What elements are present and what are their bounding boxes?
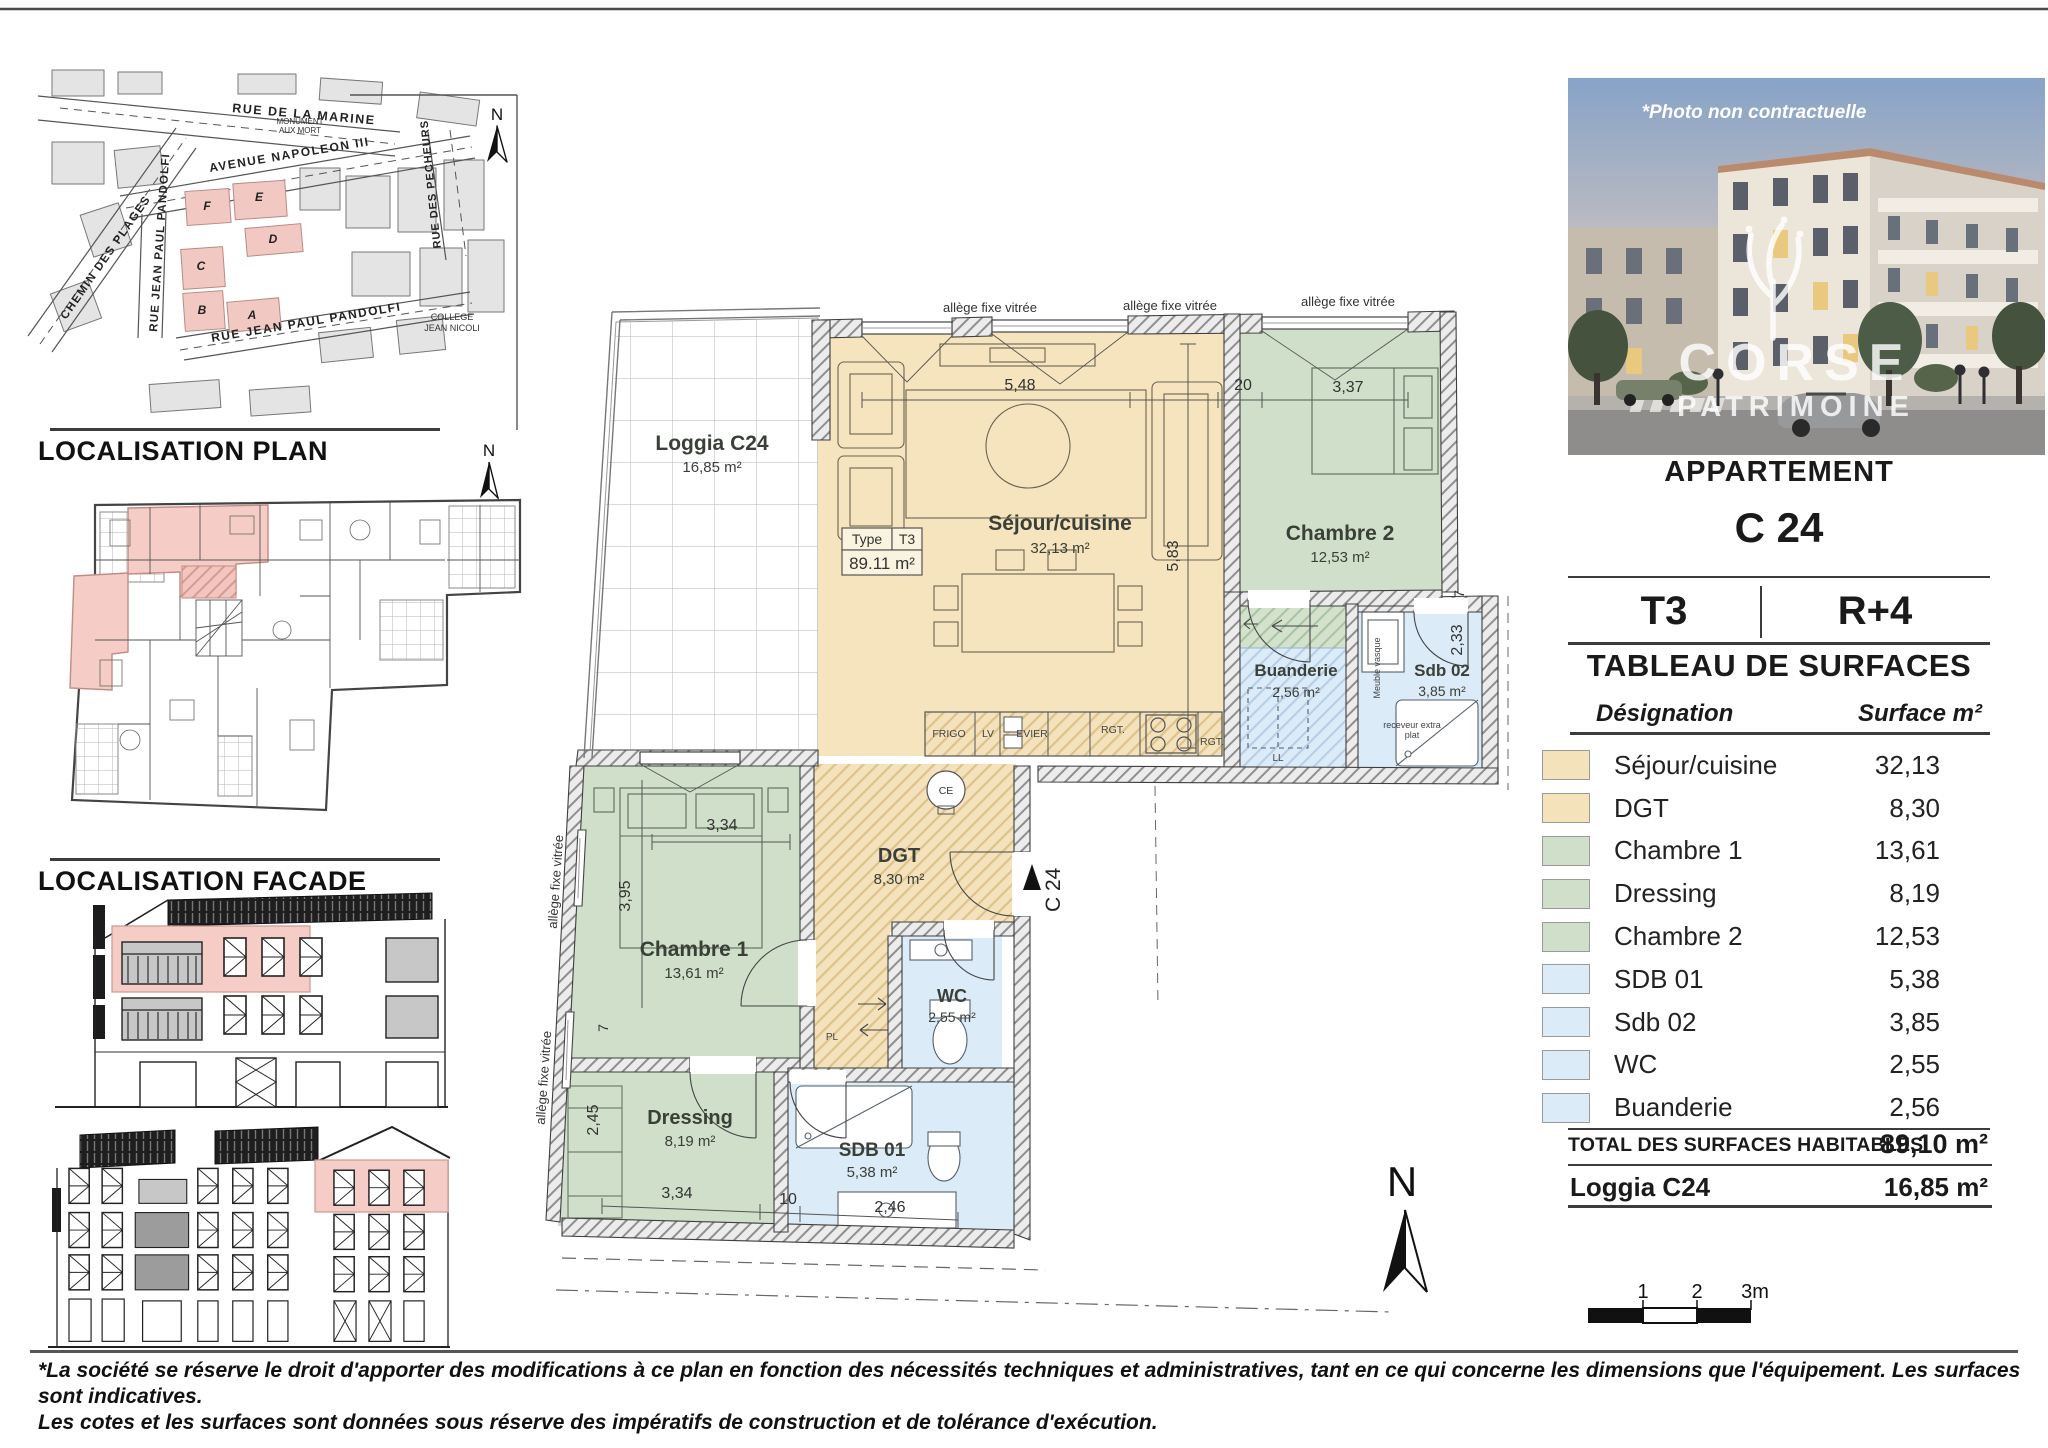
plan-sheet: F E D C B A RUE DE LA MARINE AVENUE NAPO… (0, 0, 2048, 1448)
map-north-arrow: N (487, 105, 507, 162)
apartment-floor: R+4 (1760, 582, 1990, 640)
svg-text:89.11 m²: 89.11 m² (849, 554, 915, 573)
svg-text:13,61 m²: 13,61 m² (664, 965, 723, 982)
panel-rule-2 (1568, 642, 1990, 645)
thumbnail-stair (196, 600, 242, 656)
table-row: Sdb 023,85 (1542, 1001, 1992, 1044)
svg-text:Chambre 2: Chambre 2 (1286, 522, 1395, 545)
building-photo: CORSE PATRIMOINE *Photo non contractuell… (1568, 78, 2045, 455)
kitchen-counter (925, 712, 1222, 756)
table-row: Chambre 113,61 (1542, 830, 1992, 873)
svg-text:D: D (269, 232, 278, 246)
disclaimer-rule (30, 1350, 2018, 1353)
row-value: 3,85 (1889, 1007, 1940, 1038)
svg-text:Séjour/cuisine: Séjour/cuisine (988, 512, 1132, 535)
svg-text:10: 10 (779, 1191, 797, 1208)
scale-bar: 1 2 3m (1588, 1281, 1769, 1323)
room-chambre1 (568, 766, 800, 1058)
svg-text:Buanderie: Buanderie (1254, 661, 1337, 680)
apartment-label: APPARTEMENT (1568, 456, 1990, 489)
row-value: 8,19 (1889, 878, 1940, 909)
svg-text:C 24: C 24 (1042, 867, 1065, 912)
panel-rule-1 (1568, 576, 1990, 578)
svg-text:SDB 01: SDB 01 (839, 1140, 906, 1161)
surfaces-table-title: TABLEAU DE SURFACES (1568, 648, 1990, 684)
apartment-code: C 24 (1568, 504, 1990, 552)
apartment-type: T3 (1568, 582, 1760, 640)
svg-text:N: N (1387, 1158, 1417, 1205)
row-swatch (1542, 1050, 1590, 1080)
svg-text:CE: CE (939, 785, 954, 797)
svg-text:8,19 m²: 8,19 m² (665, 1133, 716, 1150)
floorplan-thumbnail (70, 500, 520, 810)
svg-text:allège fixe vitrée: allège fixe vitrée (1123, 298, 1217, 313)
svg-text:PL: PL (826, 1032, 839, 1043)
type-floor-row: T3 R+4 (1568, 582, 1990, 640)
svg-text:3,37: 3,37 (1332, 379, 1363, 396)
header-rule (1570, 732, 1990, 735)
svg-text:A: A (247, 308, 257, 322)
row-value: 5,38 (1889, 964, 1940, 995)
plan-title-rule (50, 428, 440, 431)
svg-text:allège fixe vitrée: allège fixe vitrée (943, 300, 1037, 315)
svg-text:8,30 m²: 8,30 m² (874, 871, 925, 888)
svg-text:1: 1 (1637, 1281, 1648, 1303)
svg-text:N: N (483, 441, 495, 460)
title-north-arrow: N (480, 441, 498, 498)
row-value: 13,61 (1875, 835, 1940, 866)
row-name: Sdb 02 (1614, 1007, 1696, 1038)
svg-text:AUX MORT: AUX MORT (279, 126, 321, 135)
svg-text:7: 7 (1451, 590, 1467, 598)
svg-text:Dressing: Dressing (647, 1107, 733, 1129)
svg-text:3,95: 3,95 (617, 880, 634, 911)
svg-text:MONUMENT: MONUMENT (276, 117, 323, 126)
plan-north-arrow: N (1383, 1158, 1427, 1292)
disclaimer-line1: *La société se réserve le droit d'apport… (38, 1358, 2033, 1410)
row-name: Chambre 1 (1614, 835, 1743, 866)
apartment-floorplan: CE (533, 294, 1508, 1312)
svg-text:C: C (197, 259, 206, 273)
room-dgt-couloir (814, 930, 890, 1082)
svg-text:Sdb 02: Sdb 02 (1414, 661, 1470, 680)
svg-text:Meuble vasque: Meuble vasque (1372, 637, 1382, 698)
row-name: DGT (1614, 793, 1669, 824)
svg-text:5,48: 5,48 (1004, 377, 1035, 394)
loggia-rule-bottom (1568, 1205, 1992, 1208)
total-value: 89,10 m² (1880, 1129, 1988, 1160)
row-swatch (1542, 836, 1590, 866)
svg-text:Loggia C24: Loggia C24 (655, 432, 769, 455)
svg-text:allège fixe vitrée: allège fixe vitrée (1301, 294, 1395, 309)
facade-elevation-1 (55, 893, 448, 1107)
svg-text:LV: LV (982, 728, 994, 740)
svg-text:N: N (491, 105, 503, 124)
svg-text:Type: Type (852, 531, 883, 547)
svg-text:FRIGO: FRIGO (932, 728, 965, 740)
brand-line2: PATRIMOINE (1677, 391, 1915, 423)
total-row: TOTAL DES SURFACES HABITABLES 89,10 m² (1568, 1134, 1992, 1164)
svg-text:16,85 m²: 16,85 m² (682, 459, 741, 476)
row-name: Chambre 2 (1614, 921, 1743, 952)
svg-text:EVIER: EVIER (1016, 728, 1048, 740)
table-row: DGT8,30 (1542, 787, 1992, 830)
street-label-napoleon: AVENUE NAPOLEON III (208, 134, 370, 175)
svg-text:2,55 m²: 2,55 m² (928, 1009, 976, 1025)
row-swatch (1542, 1007, 1590, 1037)
svg-text:7: 7 (595, 1024, 611, 1032)
disclaimer: *La société se réserve le droit d'apport… (38, 1358, 2033, 1436)
surfaces-table-header: Désignation Surface m² (1570, 700, 1990, 730)
row-value: 12,53 (1875, 921, 1940, 952)
total-rule-bottom (1568, 1164, 1992, 1166)
row-value: 32,13 (1875, 750, 1940, 781)
svg-text:3m: 3m (1741, 1281, 1769, 1303)
svg-text:Chambre 1: Chambre 1 (640, 938, 749, 961)
table-row: Dressing8,19 (1542, 872, 1992, 915)
localisation-facade-title: LOCALISATION FACADE (38, 866, 367, 897)
table-row: SDB 015,38 (1542, 958, 1992, 1001)
svg-text:plat: plat (1405, 730, 1420, 740)
svg-text:WC: WC (937, 986, 967, 1006)
svg-text:RGT.: RGT. (1101, 724, 1125, 736)
row-value: 8,30 (1889, 793, 1940, 824)
row-value: 2,55 (1889, 1049, 1940, 1080)
table-row: Séjour/cuisine32,13 (1542, 744, 1992, 787)
svg-text:receveur extra: receveur extra (1383, 720, 1441, 730)
surfaces-table: Séjour/cuisine32,13 DGT8,30 Chambre 113,… (1542, 744, 1992, 1129)
facade-elevation-2 (48, 1127, 450, 1347)
svg-text:DGT: DGT (878, 845, 920, 867)
facade-title-rule (50, 858, 440, 861)
svg-text:3,34: 3,34 (706, 817, 737, 834)
svg-text:20: 20 (1234, 377, 1252, 394)
svg-text:3,34: 3,34 (661, 1185, 692, 1202)
row-value: 2,56 (1889, 1092, 1940, 1123)
localisation-plan-title: LOCALISATION PLAN (38, 436, 328, 467)
svg-text:allège fixe vitrée: allège fixe vitrée (533, 1030, 555, 1125)
svg-text:5,83: 5,83 (1165, 540, 1182, 571)
row-swatch (1542, 750, 1590, 780)
brand-line1: CORSE (1679, 334, 1914, 392)
row-swatch (1542, 964, 1590, 994)
row-name: Dressing (1614, 878, 1717, 909)
svg-text:2,56 m²: 2,56 m² (1272, 684, 1320, 700)
svg-text:32,13 m²: 32,13 m² (1030, 540, 1089, 557)
row-swatch (1542, 793, 1590, 823)
photo-caption: *Photo non contractuelle (1642, 102, 1867, 123)
loggia-value: 16,85 m² (1884, 1172, 1988, 1203)
loggia-row: Loggia C24 16,85 m² (1570, 1172, 1992, 1202)
svg-text:5,38 m²: 5,38 m² (847, 1164, 898, 1181)
row-swatch (1542, 879, 1590, 909)
row-name: WC (1614, 1049, 1657, 1080)
svg-text:3,85 m²: 3,85 m² (1418, 683, 1466, 699)
svg-text:T3: T3 (899, 531, 916, 547)
svg-text:F: F (203, 199, 211, 213)
type-box: Type T3 89.11 m² (842, 528, 922, 575)
table-row: WC2,55 (1542, 1044, 1992, 1087)
svg-text:COLLEGE: COLLEGE (431, 312, 474, 322)
col-surface: Surface m² (1858, 700, 1982, 728)
svg-text:2,45: 2,45 (585, 1104, 602, 1135)
svg-text:2,46: 2,46 (874, 1199, 905, 1216)
localisation-map: F E D C B A RUE DE LA MARINE AVENUE NAPO… (28, 70, 517, 430)
svg-text:RGT.: RGT. (1200, 736, 1224, 748)
col-designation: Désignation (1596, 700, 1733, 728)
row-swatch (1542, 1093, 1590, 1123)
total-label: TOTAL DES SURFACES HABITABLES (1568, 1134, 1923, 1156)
row-name: Buanderie (1614, 1092, 1733, 1123)
row-name: Séjour/cuisine (1614, 750, 1777, 781)
svg-text:JEAN NICOLI: JEAN NICOLI (424, 323, 480, 333)
disclaimer-line2: Les cotes et les surfaces sont données s… (38, 1410, 2033, 1436)
svg-text:2: 2 (1691, 1281, 1702, 1303)
loggia-label: Loggia C24 (1570, 1172, 1710, 1202)
svg-text:E: E (255, 190, 264, 204)
svg-text:12,53 m²: 12,53 m² (1310, 549, 1369, 566)
row-swatch (1542, 922, 1590, 952)
type-floor-divider (1760, 586, 1762, 638)
svg-text:2,33: 2,33 (1449, 624, 1466, 655)
svg-text:LL: LL (1272, 753, 1284, 764)
svg-text:B: B (198, 303, 207, 317)
table-row: Chambre 212,53 (1542, 915, 1992, 958)
table-row: Buanderie2,56 (1542, 1086, 1992, 1129)
row-name: SDB 01 (1614, 964, 1704, 995)
